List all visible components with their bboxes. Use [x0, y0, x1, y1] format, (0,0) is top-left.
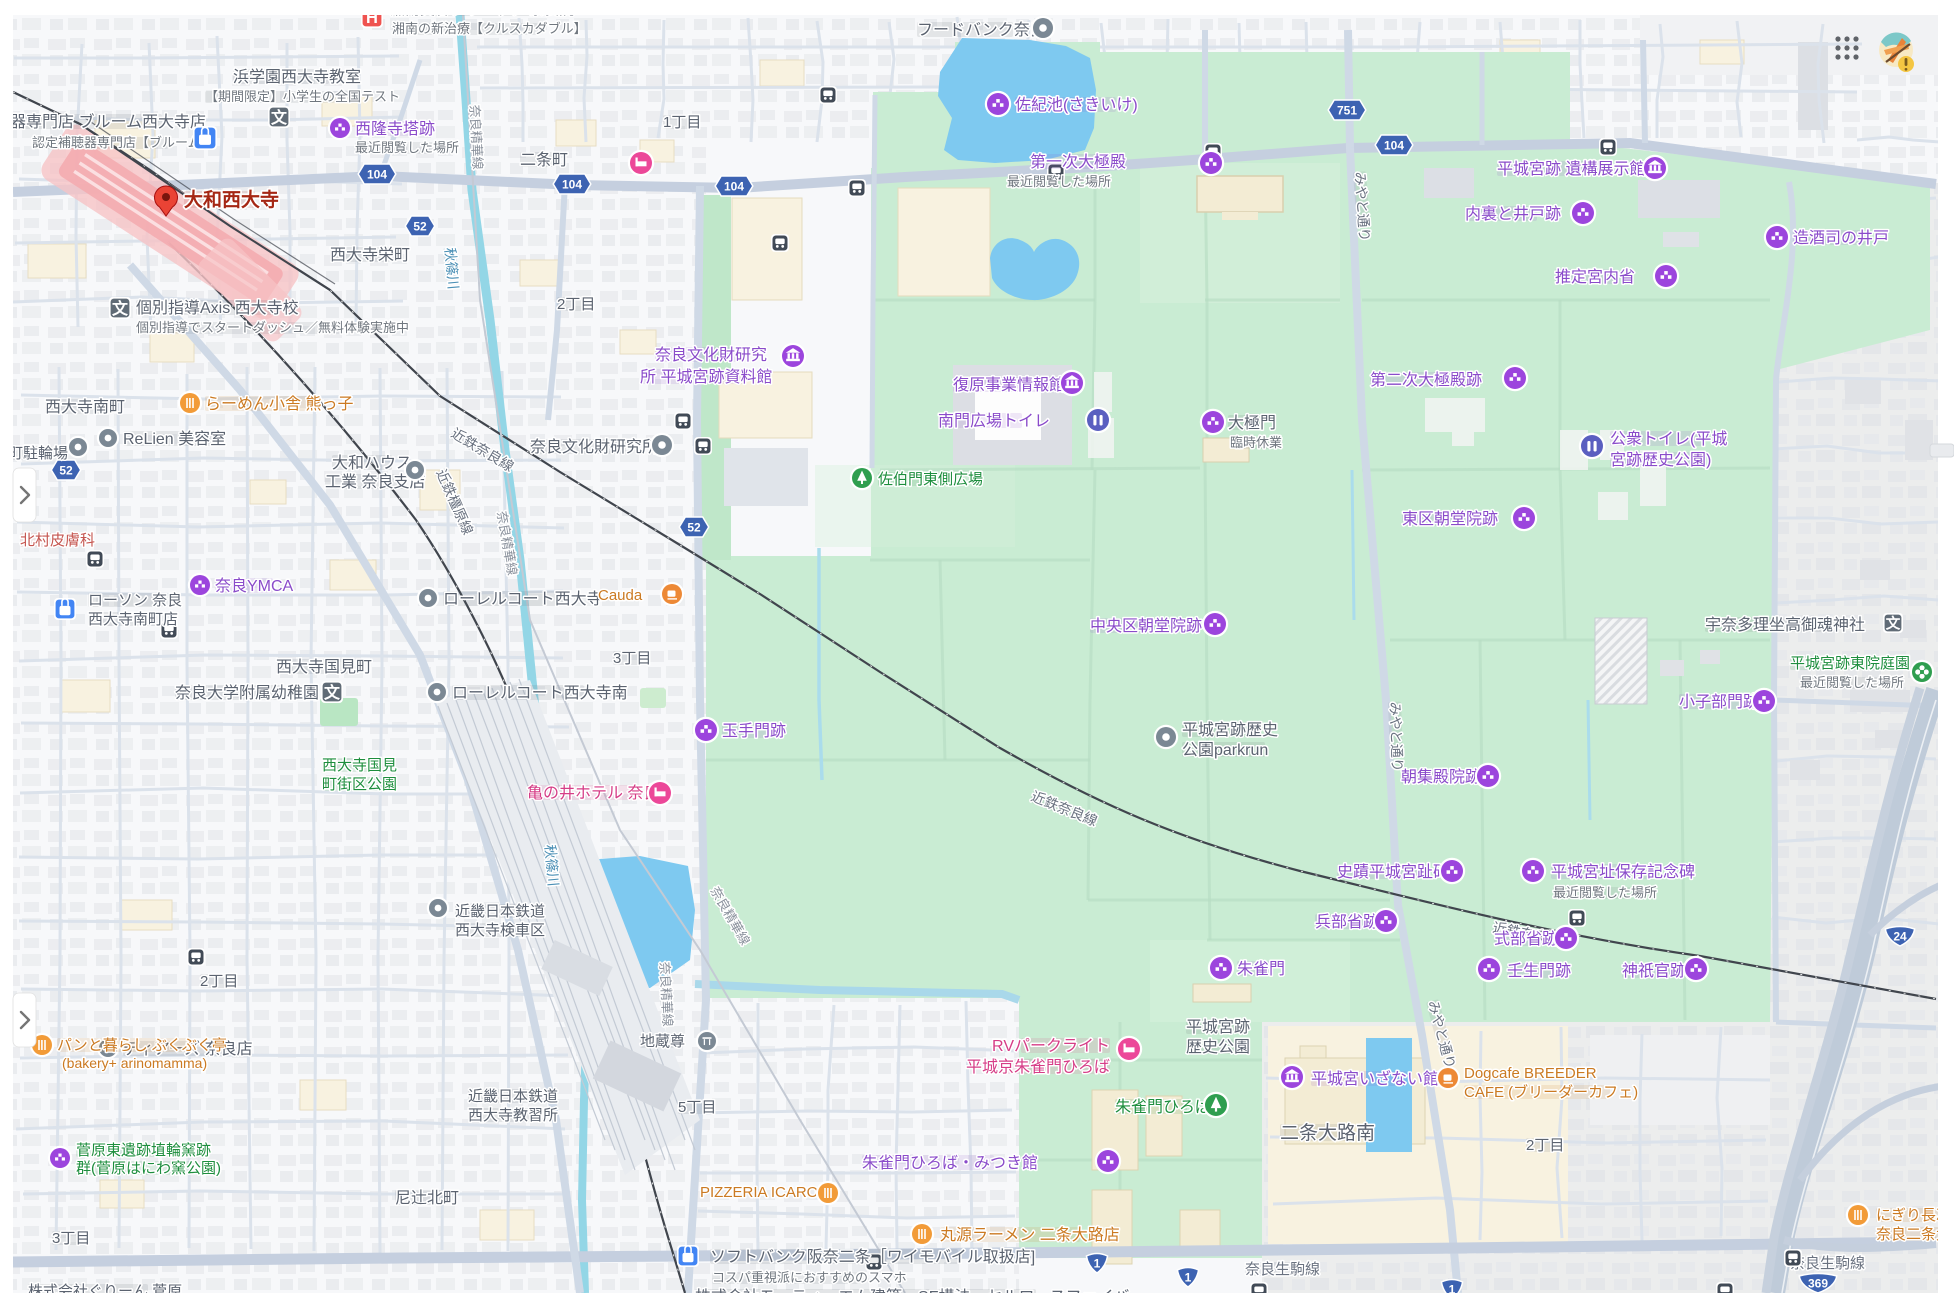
svg-text:個別指導Axis 西大寺校: 個別指導Axis 西大寺校: [136, 298, 299, 317]
svg-text:みやと通り: みやと通り: [1387, 702, 1405, 773]
svg-text:平城宮跡東院庭園: 平城宮跡東院庭園: [1790, 654, 1910, 672]
svg-text:壬生門跡: 壬生門跡: [1507, 962, 1571, 980]
svg-text:(bakery+ arinomamma): (bakery+ arinomamma): [62, 1055, 207, 1071]
svg-text:西大寺南町店: 西大寺南町店: [88, 611, 178, 628]
svg-text:西大寺栄町: 西大寺栄町: [330, 246, 410, 264]
svg-text:第二次大極殿跡: 第二次大極殿跡: [1370, 371, 1482, 389]
svg-text:個別指導でスタートダッシュ／無料体験実施中: 個別指導でスタートダッシュ／無料体験実施中: [136, 320, 409, 335]
svg-text:西大寺教習所: 西大寺教習所: [468, 1107, 558, 1124]
svg-text:最近閲覧した場所: 最近閲覧した場所: [1800, 675, 1904, 690]
svg-text:奈良大学附属幼稚園: 奈良大学附属幼稚園: [175, 684, 319, 702]
svg-text:所 平城宮跡資料館: 所 平城宮跡資料館: [640, 368, 772, 386]
svg-text:兵部省跡: 兵部省跡: [1315, 913, 1379, 931]
svg-text:神祇官跡: 神祇官跡: [1622, 962, 1686, 980]
svg-text:平城京朱雀門ひろば: 平城京朱雀門ひろば: [966, 1058, 1110, 1076]
svg-text:造酒司の井戸: 造酒司の井戸: [1793, 229, 1889, 247]
svg-text:らーめん小舎 熊っ子: らーめん小舎 熊っ子: [205, 395, 353, 413]
svg-text:公園parkrun: 公園parkrun: [1182, 742, 1268, 759]
svg-text:3丁目: 3丁目: [52, 1230, 90, 1247]
svg-text:認定補聴器専門店【ブルーム】: 認定補聴器専門店【ブルーム】: [32, 135, 214, 150]
svg-text:ローレルコート西大寺南: ローレルコート西大寺南: [452, 684, 628, 702]
svg-text:Cauda: Cauda: [598, 587, 643, 604]
svg-text:湘南の新治療【クルスカダブル】: 湘南の新治療【クルスカダブル】: [392, 21, 587, 36]
svg-text:平城宮址保存記念碑: 平城宮址保存記念碑: [1551, 862, 1695, 881]
svg-text:東区朝堂院跡: 東区朝堂院跡: [1402, 510, 1498, 528]
svg-text:104: 104: [724, 180, 744, 194]
svg-text:52: 52: [59, 464, 73, 478]
svg-text:町駐輪場: 町駐輪場: [8, 445, 68, 462]
svg-text:24: 24: [1893, 930, 1907, 944]
svg-text:浜学園西大寺教室: 浜学園西大寺教室: [233, 68, 361, 86]
svg-text:1丁目: 1丁目: [663, 114, 701, 131]
svg-text:第一次大極殿: 第一次大極殿: [1030, 153, 1126, 171]
svg-text:文: 文: [324, 683, 340, 702]
svg-text:二条町: 二条町: [520, 151, 568, 169]
svg-text:最近閲覧した場所: 最近閲覧した場所: [1553, 885, 1657, 900]
svg-text:歴史公園: 歴史公園: [1186, 1038, 1250, 1056]
svg-text:文: 文: [271, 108, 287, 127]
svg-text:文: 文: [112, 299, 128, 318]
svg-text:小子部門跡: 小子部門跡: [1679, 693, 1759, 711]
svg-text:大極門: 大極門: [1228, 414, 1276, 432]
svg-text:式部省跡: 式部省跡: [1494, 930, 1558, 948]
svg-text:史蹟平城宮趾碑: 史蹟平城宮趾碑: [1337, 863, 1449, 881]
svg-text:平城宮跡歴史: 平城宮跡歴史: [1182, 721, 1278, 739]
svg-text:近畿日本鉄道: 近畿日本鉄道: [455, 903, 545, 920]
svg-text:大和ハウス: 大和ハウス: [332, 454, 412, 472]
svg-text:5丁目: 5丁目: [678, 1099, 716, 1116]
svg-text:佐伯門東側広場: 佐伯門東側広場: [878, 471, 983, 488]
svg-text:朱雀門ひろば: 朱雀門ひろば: [1115, 1098, 1211, 1116]
svg-text:ローレルコート西大寺: ローレルコート西大寺: [443, 590, 603, 608]
svg-text:地蔵尊: 地蔵尊: [640, 1033, 685, 1050]
svg-text:最近閲覧した場所: 最近閲覧した場所: [355, 140, 459, 155]
svg-text:西隆寺塔跡: 西隆寺塔跡: [355, 120, 435, 138]
svg-text:ReLien 美容室: ReLien 美容室: [123, 430, 226, 448]
svg-text:群(菅原はにわ窯公園): 群(菅原はにわ窯公園): [76, 1159, 221, 1177]
svg-text:104: 104: [562, 178, 582, 192]
svg-text:西大寺国見町: 西大寺国見町: [276, 658, 372, 676]
svg-text:奈良YMCA: 奈良YMCA: [215, 577, 294, 595]
svg-text:CAFE (ブリーダーカフェ): CAFE (ブリーダーカフェ): [1464, 1083, 1638, 1101]
svg-text:104: 104: [1384, 139, 1404, 153]
svg-text:2丁目: 2丁目: [1526, 1137, 1564, 1154]
svg-text:奈良文化財研究所: 奈良文化財研究所: [530, 438, 658, 456]
svg-text:平城宮跡: 平城宮跡: [1186, 1018, 1250, 1036]
svg-text:RVパークライト: RVパークライト: [992, 1037, 1110, 1055]
svg-text:PIZZERIA ICARO: PIZZERIA ICARO: [700, 1184, 818, 1201]
svg-text:玉手門跡: 玉手門跡: [722, 722, 786, 740]
svg-text:文: 文: [1886, 615, 1901, 633]
svg-text:公衆トイレ(平城: 公衆トイレ(平城: [1610, 430, 1727, 448]
svg-text:臨時休業: 臨時休業: [1230, 435, 1282, 450]
svg-text:宇奈多理坐高御魂神社: 宇奈多理坐高御魂神社: [1705, 616, 1865, 634]
svg-text:フードバンク奈良: フードバンク奈良: [917, 21, 1046, 39]
svg-text:亀の井ホテル 奈良: 亀の井ホテル 奈良: [527, 784, 659, 802]
svg-text:町街区公園: 町街区公園: [322, 776, 397, 793]
svg-text:【期間限定】小学生の全国テスト: 【期間限定】小学生の全国テスト: [205, 89, 400, 104]
svg-text:コスパ重視派におすすめのスマホ: コスパ重視派におすすめのスマホ: [712, 1270, 907, 1285]
svg-text:中央区朝堂院跡: 中央区朝堂院跡: [1090, 617, 1202, 635]
svg-text:推定宮内省: 推定宮内省: [1555, 268, 1635, 286]
svg-text:復原事業情報館: 復原事業情報館: [953, 376, 1065, 394]
svg-text:大和西大寺: 大和西大寺: [184, 188, 279, 211]
svg-text:二条大路南: 二条大路南: [1280, 1122, 1375, 1144]
svg-text:52: 52: [413, 220, 427, 234]
svg-text:2丁目: 2丁目: [557, 296, 595, 313]
svg-text:朱雀門: 朱雀門: [1237, 960, 1285, 978]
svg-text:西大寺国見: 西大寺国見: [322, 757, 397, 774]
svg-text:3丁目: 3丁目: [613, 650, 651, 667]
svg-text:近畿日本鉄道: 近畿日本鉄道: [468, 1088, 558, 1105]
svg-text:1: 1: [1094, 1257, 1101, 1271]
svg-text:ソフトバンク阪奈二条［ワイモバイル取扱店]: ソフトバンク阪奈二条［ワイモバイル取扱店]: [710, 1248, 1035, 1266]
svg-text:104: 104: [367, 168, 387, 182]
svg-text:751: 751: [1337, 104, 1357, 118]
svg-text:最近閲覧した場所: 最近閲覧した場所: [1007, 174, 1111, 189]
svg-text:器専門店 ブルーム西大寺店: 器専門店 ブルーム西大寺店: [10, 112, 206, 131]
svg-text:2丁目: 2丁目: [200, 973, 238, 990]
svg-text:パンと暮らし ぶくぶく亭: パンと暮らし ぶくぶく亭: [57, 1036, 227, 1054]
svg-text:西大寺検車区: 西大寺検車区: [455, 922, 545, 939]
svg-text:佐紀池(さきいけ): 佐紀池(さきいけ): [1015, 96, 1138, 114]
svg-text:52: 52: [687, 521, 701, 535]
svg-text:奈良文化財研究: 奈良文化財研究: [655, 346, 767, 364]
svg-text:奈良生駒線: 奈良生駒線: [1245, 1261, 1320, 1278]
svg-text:平城宮いざない館: 平城宮いざない館: [1311, 1069, 1439, 1088]
svg-text:369: 369: [1808, 1277, 1828, 1291]
svg-text:西大寺南町: 西大寺南町: [45, 398, 125, 416]
svg-text:朝集殿院跡: 朝集殿院跡: [1401, 768, 1481, 786]
svg-text:南門広場トイレ: 南門広場トイレ: [938, 412, 1050, 430]
svg-text:1: 1: [1185, 1271, 1192, 1285]
svg-text:内裏と井戸跡: 内裏と井戸跡: [1465, 204, 1561, 223]
svg-text:朱雀門ひろば・みつき館: 朱雀門ひろば・みつき館: [862, 1154, 1038, 1172]
svg-text:ローソン 奈良: ローソン 奈良: [88, 592, 182, 609]
svg-text:北村皮膚科: 北村皮膚科: [20, 532, 95, 549]
svg-text:宮跡歴史公園): 宮跡歴史公園): [1610, 451, 1711, 469]
svg-text:尼辻北町: 尼辻北町: [395, 1189, 459, 1207]
svg-text:平城宮跡 遺構展示館: 平城宮跡 遺構展示館: [1497, 160, 1645, 178]
svg-text:菅原東遺跡埴輪窯跡: 菅原東遺跡埴輪窯跡: [76, 1141, 211, 1159]
svg-text:丸源ラーメン 二条大路店: 丸源ラーメン 二条大路店: [940, 1226, 1120, 1244]
svg-text:Dogcafe BREEDER: Dogcafe BREEDER: [1464, 1065, 1597, 1082]
